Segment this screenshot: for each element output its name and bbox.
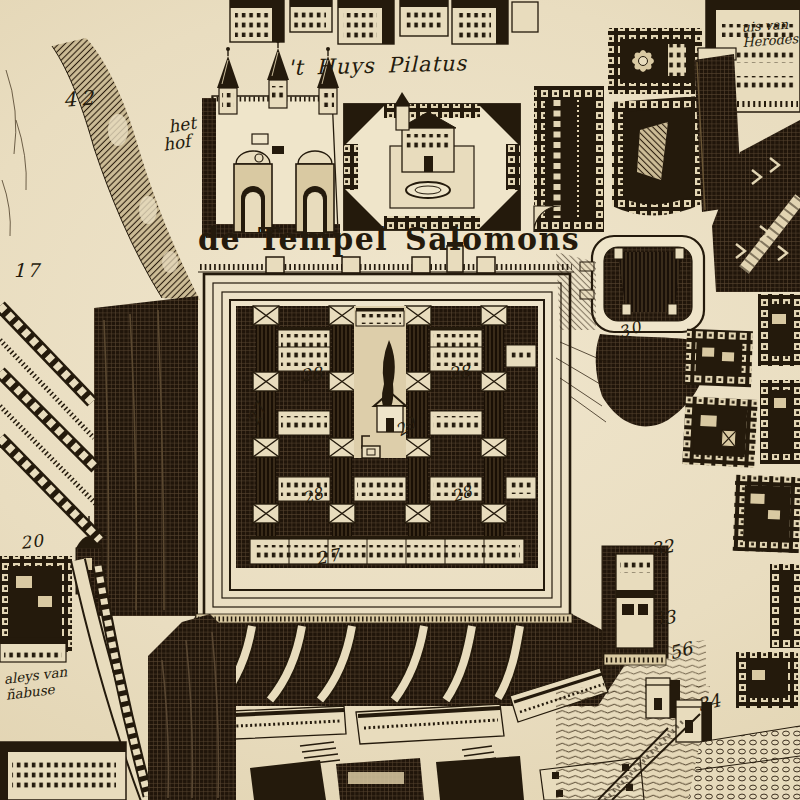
label-het-hof: het hof xyxy=(167,115,200,153)
city-block xyxy=(760,380,800,464)
map-number-28-ne: 28 xyxy=(447,361,471,384)
north-city-row xyxy=(230,0,538,44)
map-number-28-nw: 28 xyxy=(299,363,323,386)
city-block xyxy=(534,86,604,232)
map-engraving xyxy=(0,0,800,800)
south-stoa xyxy=(250,536,524,564)
west-house-streets xyxy=(0,306,100,540)
city-block xyxy=(770,564,800,648)
city-block xyxy=(682,396,757,468)
rosette-block xyxy=(608,28,702,94)
map-number-32: 32 xyxy=(649,535,675,560)
city-block xyxy=(736,652,798,708)
north-building xyxy=(512,2,538,32)
courtyard-basin xyxy=(406,182,450,198)
map-number-42: 42 xyxy=(62,85,99,112)
city-block xyxy=(685,329,753,387)
north-building xyxy=(230,0,284,42)
fortress-glacis xyxy=(556,252,596,330)
north-building xyxy=(452,0,508,44)
north-building xyxy=(338,0,394,44)
east-blocks-grid xyxy=(682,294,800,648)
map-number-20: 20 xyxy=(19,530,45,553)
sanctuary-altar xyxy=(362,446,380,458)
pilatus-house xyxy=(344,92,520,230)
building-32-33 xyxy=(602,546,668,665)
rounded-block xyxy=(612,96,702,216)
label-huis-herodes: uis van Herodes xyxy=(741,17,799,50)
northeast-blocks xyxy=(534,28,702,232)
castle-tower xyxy=(217,47,239,114)
paleys-building xyxy=(0,742,126,800)
map-number-33: 33 xyxy=(651,606,677,630)
map-number-17: 17 xyxy=(13,259,41,281)
temple-court xyxy=(236,306,538,568)
terrace-building xyxy=(356,704,504,744)
north-building xyxy=(290,0,332,32)
castle-tower xyxy=(267,39,289,108)
north-building xyxy=(400,0,448,36)
castle-gatehouse xyxy=(234,151,272,232)
map-canvas: de Tempel Salomons 't Huys Pilatus het h… xyxy=(0,0,800,800)
courtyard-table xyxy=(272,146,284,154)
small-row-building xyxy=(0,638,66,662)
label-tempel-salomons: de Tempel Salomons xyxy=(198,224,580,255)
city-block xyxy=(733,475,800,553)
castle-gatehouse xyxy=(296,151,334,232)
label-huys-pilatus: 't Huys Pilatus xyxy=(287,53,467,79)
city-block xyxy=(758,294,800,366)
